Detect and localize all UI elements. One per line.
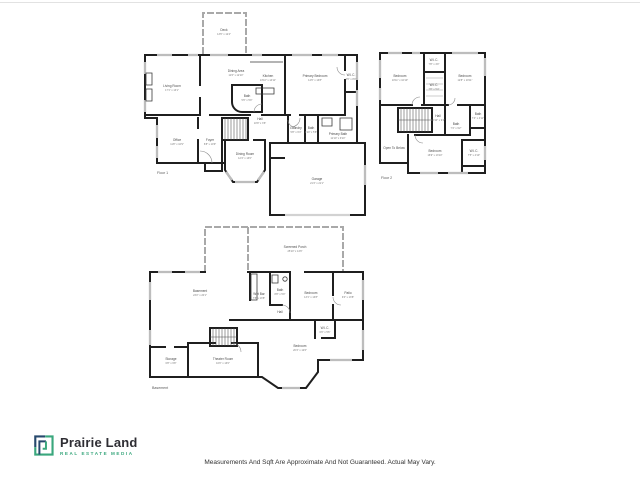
- room-dims: 9'4" x 13'8": [342, 296, 354, 299]
- room-label: Basement: [193, 289, 207, 293]
- room-dims: 4'10" x 5'8": [305, 131, 317, 134]
- room-label: Kitchen: [263, 74, 274, 78]
- floor1-label: Floor 1: [157, 171, 168, 175]
- room-dims: 7'8" x 4'0": [429, 63, 440, 66]
- room-dims: 6'0" x 5'6": [320, 331, 331, 334]
- room-dims: 13'1" x 13'8": [304, 296, 318, 299]
- room-dims: 11'8" x 10'9": [170, 143, 184, 146]
- room-dims: 10'11" x 10'10": [392, 79, 408, 82]
- room-label: Dining Room: [236, 152, 255, 156]
- room-label: Bath: [277, 288, 284, 292]
- room-dims: 20'4" x 12'6": [293, 349, 307, 352]
- room-dims: 5'8" x 6'4": [291, 131, 302, 134]
- disclaimer-text: Measurements And Sqft Are Approximate An…: [0, 459, 640, 466]
- room-label: Open To Below: [383, 146, 405, 150]
- room-label: W.I.C.: [430, 83, 439, 87]
- room-label: W.I.C.: [470, 149, 479, 153]
- room-label: Theater Room: [213, 357, 234, 361]
- room-dims: 7'8" x 5'4": [429, 88, 440, 91]
- room-label: Patio: [344, 291, 351, 295]
- room-dims: 25'10" x 14'6": [287, 250, 302, 253]
- room-dims: 16'0" x 13'0": [216, 362, 230, 365]
- floor2-plan: Bedroom 10'11" x 10'10" W.I.C. 7'8" x 4'…: [380, 53, 485, 180]
- room-label: Bath: [453, 122, 460, 126]
- room-dims: 8'8" x 5'0": [275, 293, 286, 296]
- room-label: Hall: [435, 114, 441, 118]
- room-label: Bedroom: [429, 149, 442, 153]
- room-dims: 23'2" x 20'1": [193, 294, 207, 297]
- room-dims: 13'10" x 14'11": [260, 79, 276, 82]
- room-dims: 6'8" x 6'8": [166, 362, 177, 365]
- room-label: Storage: [165, 357, 176, 361]
- floor-plan-page: Deck 13'6" x 12'4" Living Room 17'1" x 1…: [0, 0, 640, 480]
- room-dims: 7'8" x 13'8": [253, 297, 265, 300]
- room-dims: 14'6" x 13'8": [308, 79, 322, 82]
- room-label: Primary Bedroom: [303, 74, 328, 78]
- room-label: Foyer: [206, 138, 215, 142]
- room-label: Bedroom: [459, 74, 472, 78]
- room-dims: 7'5" x 4'10": [468, 154, 480, 157]
- floor-plan-canvas: Deck 13'6" x 12'4" Living Room 17'1" x 1…: [0, 0, 640, 480]
- room-dims: 6'8" x 10'9": [204, 143, 216, 146]
- basement-label: Basement: [152, 386, 168, 390]
- logo-name: Prairie Land: [60, 436, 138, 449]
- company-logo: Prairie Land REAL ESTATE MEDIA: [32, 434, 138, 457]
- room-label: Bath: [475, 112, 482, 116]
- room-label: Garage: [312, 177, 323, 181]
- basement-plan: Screened Porch 25'10" x 14'6" Basement 2…: [150, 227, 363, 390]
- room-dims: 7'4" x 4'11": [472, 117, 484, 120]
- room-label: Dining Area: [228, 69, 245, 73]
- room-dims: 21'4" x 21'1": [310, 182, 324, 185]
- room-label: Bedroom: [305, 291, 318, 295]
- room-label: Screened Porch: [284, 245, 307, 249]
- room-label: Bedroom: [294, 344, 307, 348]
- floor1-plan: Deck 13'6" x 12'4" Living Room 17'1" x 1…: [145, 13, 365, 215]
- room-dims: 16'9" x 13'10": [427, 154, 442, 157]
- room-dims: 5'6" x 5'0": [242, 99, 253, 102]
- room-label: Office: [173, 138, 181, 142]
- room-label: Living Room: [163, 84, 181, 88]
- room-label: Bath: [244, 94, 251, 98]
- room-dims: 11'6" x 12'10": [229, 74, 244, 77]
- room-dims: 13'6" x 12'4": [217, 33, 231, 36]
- floor2-label: Floor 2: [381, 176, 392, 180]
- room-dims: 10'8" x 3'6": [254, 122, 266, 125]
- room-label: W.I.C.: [321, 326, 330, 330]
- room-label: Deck: [220, 28, 228, 32]
- room-label: Laundry: [290, 126, 302, 130]
- room-dims: 7'4" x 9'2": [451, 127, 462, 130]
- room-label: Wet Bar: [253, 292, 265, 296]
- room-dims: 3'6" x 8'0": [346, 78, 357, 81]
- room-label: Primary Bath: [329, 132, 348, 136]
- prairie-land-logo-icon: [32, 434, 55, 457]
- logo-text-block: Prairie Land REAL ESTATE MEDIA: [60, 436, 138, 456]
- room-label: Hall: [257, 117, 263, 121]
- room-label: W.I.C.: [430, 58, 439, 62]
- room-dims: 10'10" x 9'4": [431, 119, 445, 122]
- room-dims: 11'10" x 9'10": [331, 137, 346, 140]
- room-label: Bath: [308, 126, 315, 130]
- room-label: W.I.C.: [347, 73, 356, 77]
- room-label: Bedroom: [394, 74, 407, 78]
- room-dims: 17'1" x 13'1": [165, 89, 179, 92]
- room-dims: 12'8" x 10'11": [458, 79, 473, 82]
- room-label: Hall: [277, 310, 283, 314]
- room-dims: 12'4" x 13'0": [238, 157, 252, 160]
- logo-tagline: REAL ESTATE MEDIA: [60, 451, 138, 456]
